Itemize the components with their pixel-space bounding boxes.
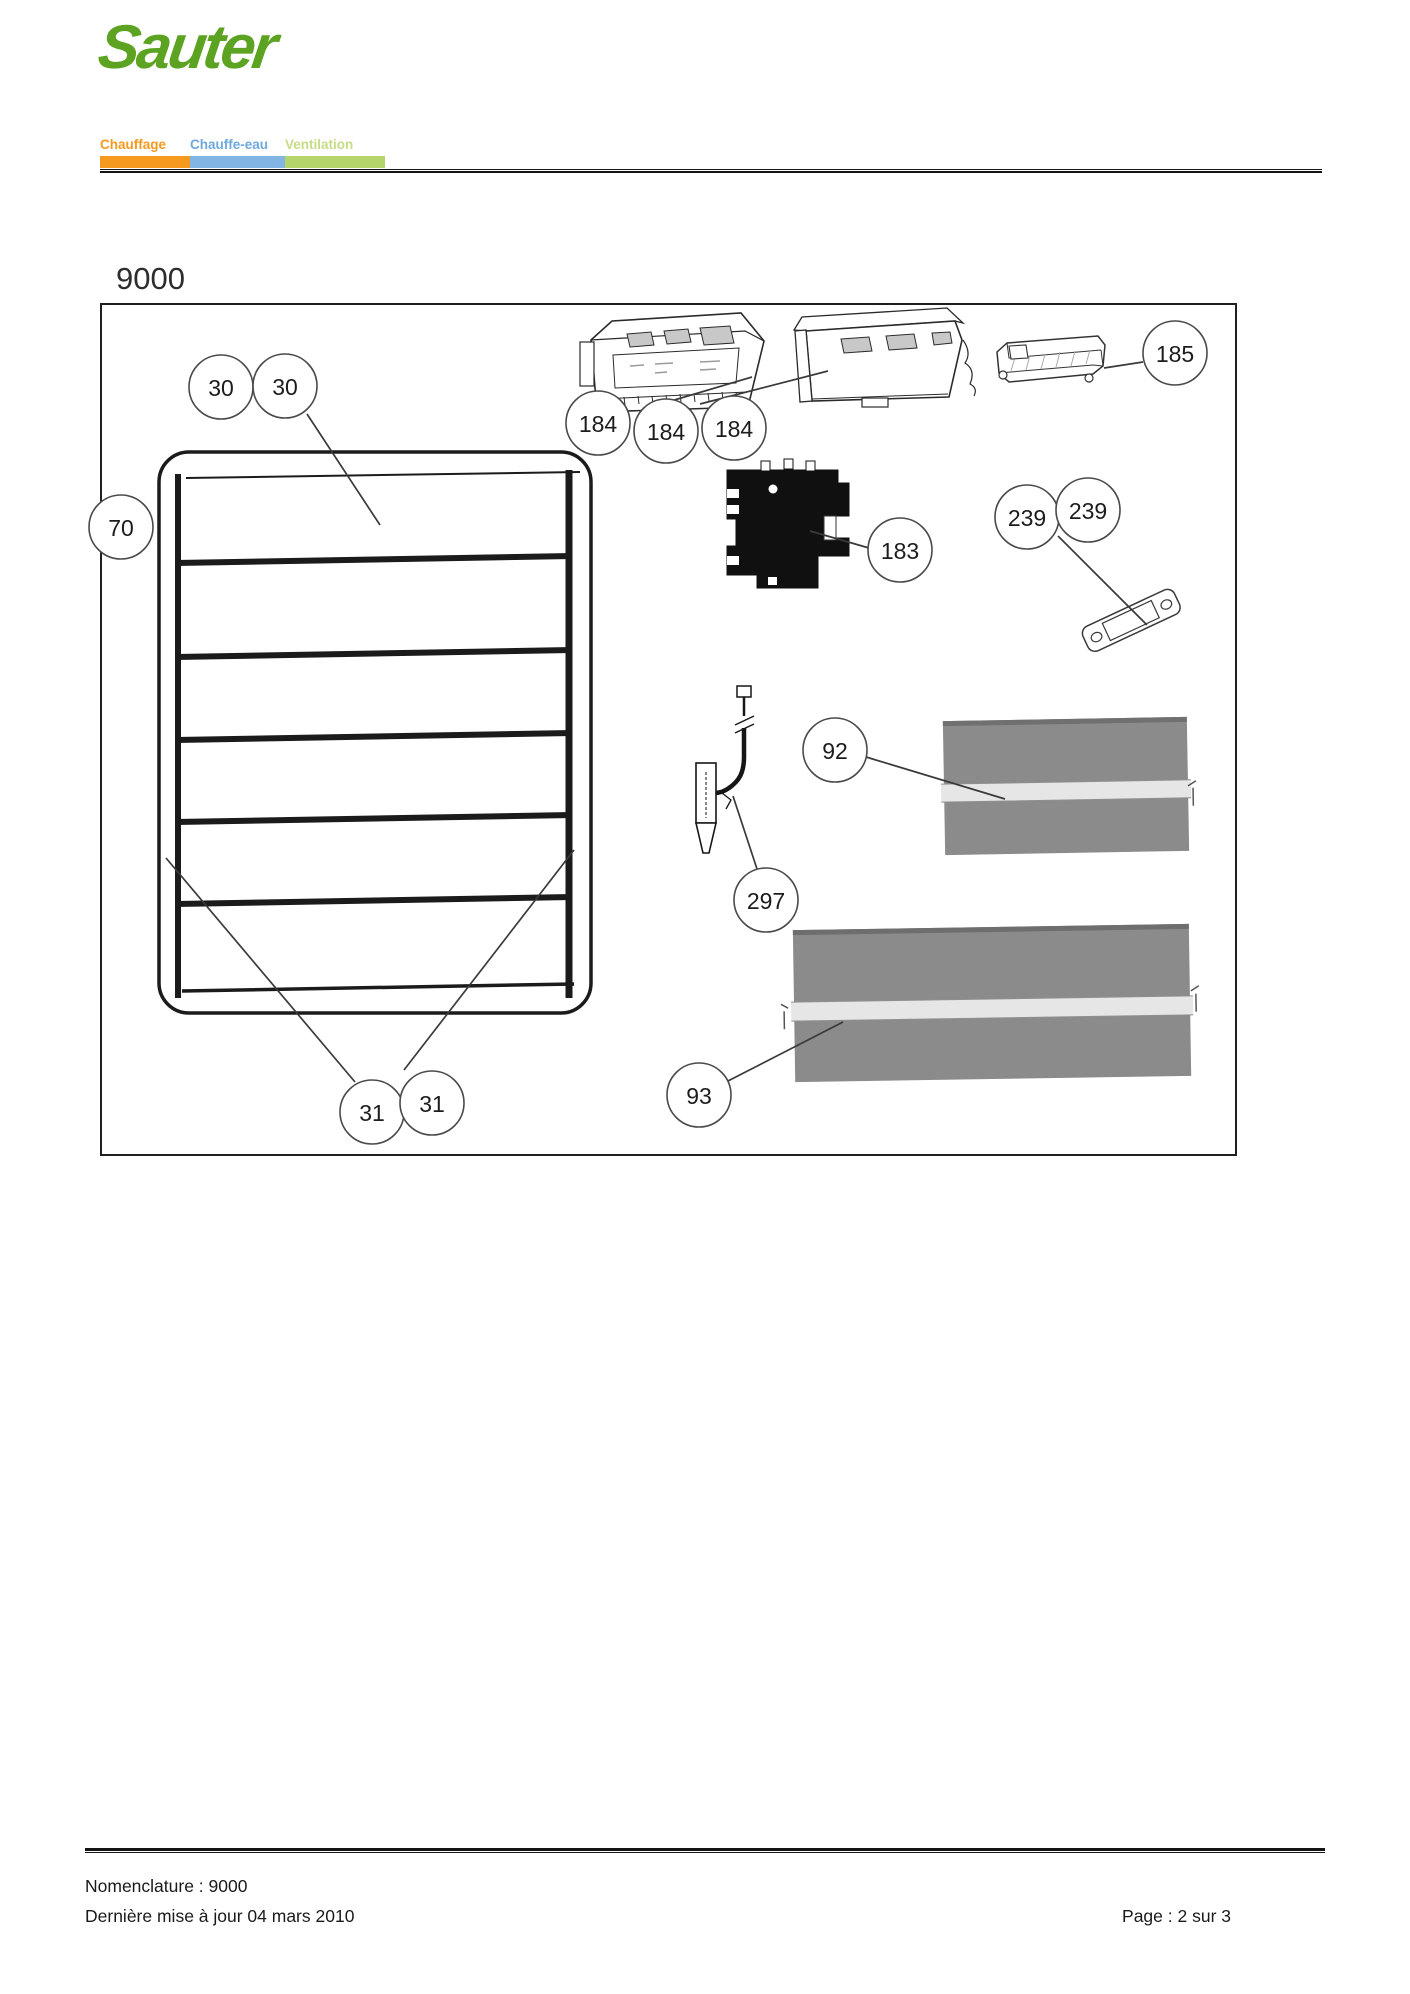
footer-divider [85, 1848, 1325, 1853]
nav-bar-chauffage [100, 156, 190, 168]
figure-title: 9000 [116, 261, 185, 297]
category-nav-labels: ChauffageChauffe-eauVentilation [100, 137, 385, 152]
nav-bar-ventilation [285, 156, 385, 168]
nav-item-chauffage: Chauffage [100, 137, 190, 152]
sauter-logo: Sauter [94, 12, 279, 83]
footer-last-update: Dernière mise à jour 04 mars 2010 [85, 1906, 354, 1927]
nav-item-chauffe-eau: Chauffe-eau [190, 137, 285, 152]
footer-page-number: Page : 2 sur 3 [950, 1906, 1231, 1927]
footer-nomenclature: Nomenclature : 9000 [85, 1876, 247, 1897]
category-nav-bars [100, 156, 385, 168]
nav-item-ventilation: Ventilation [285, 137, 385, 152]
header-divider [100, 169, 1322, 173]
nav-bar-chauffe-eau [190, 156, 285, 168]
nomenclature-page: Sauter ChauffageChauffe-eauVentilation 9… [0, 0, 1410, 1994]
diagram-frame [100, 303, 1237, 1156]
